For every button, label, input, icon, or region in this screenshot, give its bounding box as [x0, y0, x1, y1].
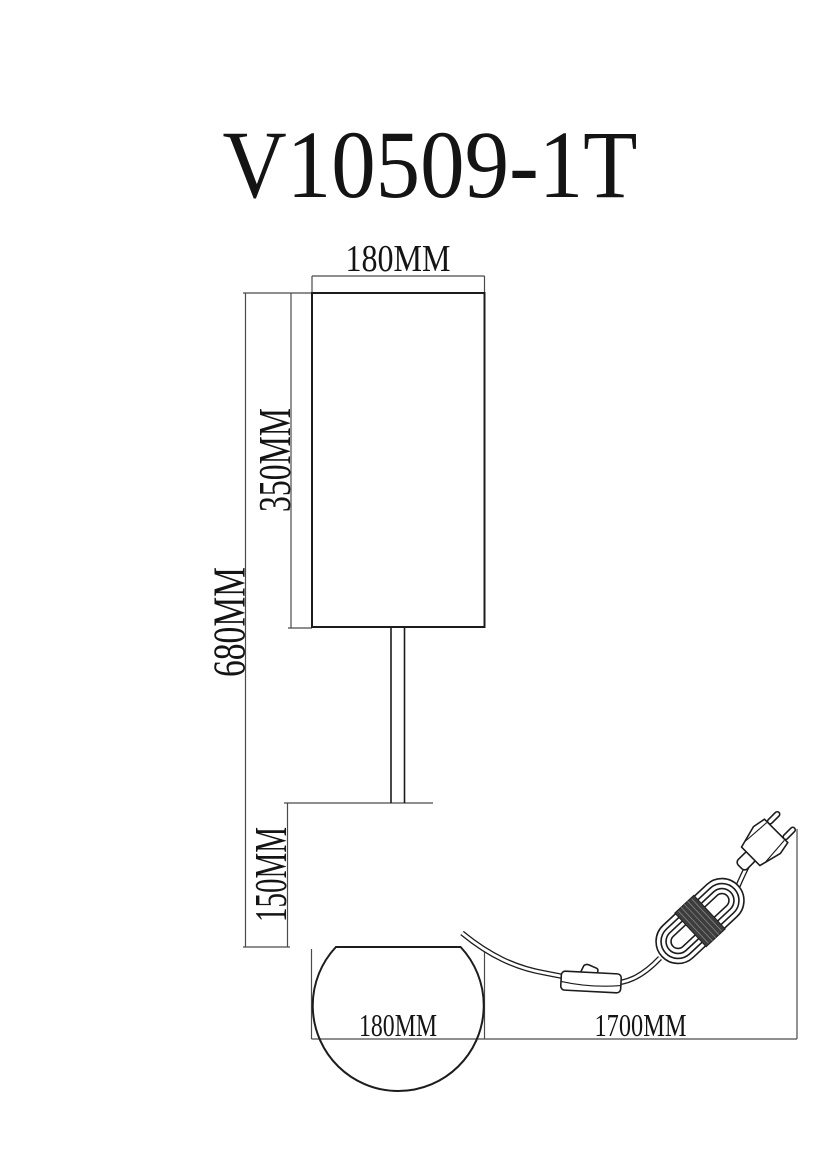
dim-label-base-width: 180MM [359, 1007, 437, 1043]
dim-label-shade-height: 350MM [249, 408, 300, 512]
dim-label-cord-length: 1700MM [595, 1007, 687, 1043]
lamp-drawing [312, 293, 485, 1091]
cord-assembly [462, 807, 800, 993]
lamp-shade-outline [312, 293, 485, 627]
switch-body [561, 971, 622, 993]
dim-label-base-height: 150MM [245, 827, 296, 922]
technical-drawing-canvas: V10509-1T 180MM 350MM 680MM 150MM 180MM … [0, 0, 825, 1168]
cord-coil [646, 869, 753, 974]
drawing-page: V10509-1T 180MM 350MM 680MM 150MM 180MM … [0, 0, 825, 1168]
product-code-title: V10509-1T [223, 111, 638, 218]
dim-label-shade-width: 180MM [346, 238, 451, 280]
lamp-stem [391, 627, 405, 803]
power-plug [727, 807, 801, 881]
dim-label-total-height: 680MM [204, 567, 255, 677]
inline-switch [561, 963, 622, 993]
